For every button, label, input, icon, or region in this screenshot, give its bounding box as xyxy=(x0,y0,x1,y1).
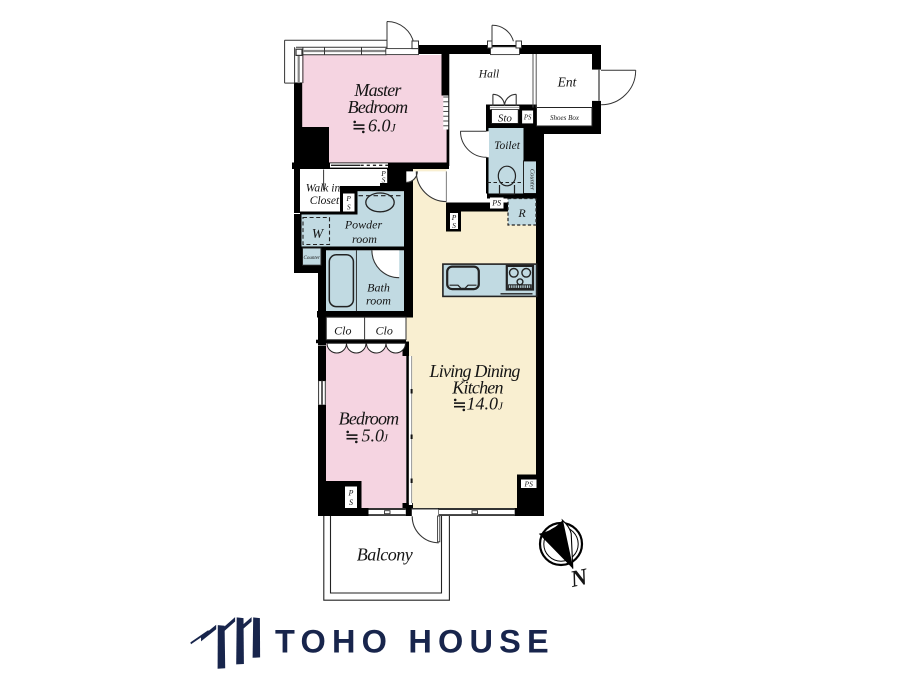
svg-text:J: J xyxy=(391,123,397,135)
svg-text:Clo: Clo xyxy=(334,324,351,338)
svg-text:Hall: Hall xyxy=(478,69,499,81)
svg-text:S: S xyxy=(347,203,351,212)
svg-text:PS: PS xyxy=(523,115,532,122)
svg-text:PS: PS xyxy=(524,479,534,488)
svg-text:TOHO HOUSE: TOHO HOUSE xyxy=(275,624,555,660)
svg-text:Walk in: Walk in xyxy=(306,183,341,195)
svg-text:Clo: Clo xyxy=(376,324,393,338)
svg-text:Counter: Counter xyxy=(529,169,536,191)
svg-text:Balcony: Balcony xyxy=(357,545,413,565)
svg-text:PS: PS xyxy=(491,199,501,208)
svg-text:P: P xyxy=(348,489,354,498)
svg-text:5.0: 5.0 xyxy=(362,426,385,446)
svg-text:Powder: Powder xyxy=(344,218,383,232)
svg-text:room: room xyxy=(366,294,391,308)
svg-text:Bedroom: Bedroom xyxy=(348,97,409,117)
svg-text:Bath: Bath xyxy=(367,281,390,295)
svg-text:14.0: 14.0 xyxy=(467,394,499,414)
svg-text:S: S xyxy=(452,221,456,230)
svg-text:S: S xyxy=(349,498,353,507)
svg-text:6.0: 6.0 xyxy=(368,116,391,136)
svg-text:Counter: Counter xyxy=(304,256,320,261)
svg-text:Closet: Closet xyxy=(310,195,340,207)
svg-text:room: room xyxy=(352,232,377,246)
svg-text:Toilet: Toilet xyxy=(494,140,521,152)
svg-text:Sto: Sto xyxy=(498,112,513,124)
svg-text:R: R xyxy=(517,206,526,220)
svg-text:S: S xyxy=(382,176,386,185)
svg-text:W: W xyxy=(312,226,325,241)
svg-text:Shoes Box: Shoes Box xyxy=(550,114,580,122)
svg-text:Ent: Ent xyxy=(557,75,578,90)
